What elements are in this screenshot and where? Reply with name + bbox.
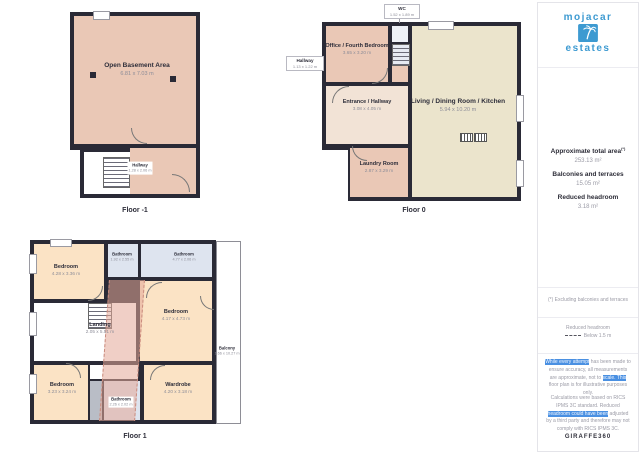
room-label-balcony: Balcony 1.66 x 10.27 m (214, 346, 239, 357)
stairs-floor0 (392, 44, 410, 66)
agency-logo: mojacar estates (538, 12, 638, 54)
room-label-open-basement-area: Open Basement Area 6.81 x 7.03 m (104, 62, 170, 78)
window (50, 239, 72, 247)
stat-label-reduced-headroom: Reduced headroom (538, 194, 638, 201)
window (428, 21, 454, 30)
divider (538, 317, 638, 318)
divider (538, 353, 638, 354)
floor-0-caption: Floor 0 (402, 207, 425, 214)
floor-minus1-caption: Floor -1 (122, 207, 148, 214)
stat-label-balconies: Balconies and terraces (538, 171, 638, 178)
room-label-bathroom-tm: Bathroom 1.92 x 2.55 m (110, 252, 133, 263)
room-wc (392, 26, 408, 42)
window (29, 312, 37, 336)
room-open-basement-area (74, 16, 196, 144)
stat-value-reduced-headroom: 3.18 m² (538, 204, 638, 210)
room-label-bedroom-bl: Bedroom 3.23 x 3.24 m (48, 382, 76, 396)
logo-word-estates: estates (538, 43, 638, 54)
room-label-living: Living / Dining Room / Kitchen 5.94 x 10… (411, 98, 505, 114)
room-label-bedroom-tl: Bedroom 4.28 x 3.36 m (52, 264, 80, 278)
floorplan-page: Open Basement Area 6.81 x 7.03 m Hallway… (0, 0, 640, 453)
dashed-line-sample (565, 335, 581, 336)
logo-word-mojacar: mojacar (538, 12, 638, 23)
area-footnote: (*) Excluding balconies and terraces (538, 297, 638, 305)
pillar (170, 76, 176, 82)
window (516, 95, 524, 122)
window (516, 160, 524, 187)
room-label-office: Office / Fourth Bedroom 3.65 x 3.20 m (325, 43, 388, 57)
floor-0-porch-cut (322, 150, 348, 201)
radiator (474, 133, 487, 142)
legend-item: Below 1.5 m (538, 333, 638, 341)
stat-label-total-area: Approximate total area(*) (538, 146, 638, 155)
divider (538, 287, 638, 288)
window (29, 374, 37, 394)
giraffe360-logo: GIRAFFE360 (538, 434, 638, 440)
stat-value-total-area: 253.13 m² (538, 158, 638, 164)
radiator (460, 133, 473, 142)
info-sidebar: mojacar estates Approximate total area(*… (537, 2, 639, 452)
room-label-wc: WC 1.52 x 1.89 m (384, 4, 420, 19)
floor-1-caption: Floor 1 (123, 433, 146, 440)
room-label-wardrobe: Wardrobe 4.20 x 3.18 m (164, 382, 192, 396)
room-balcony (216, 241, 241, 424)
room-label-hallway-0: Hallway 1.13 x 1.22 m (286, 56, 324, 71)
stat-value-balconies: 15.05 m² (538, 181, 638, 187)
headroom-legend: Reduced headroom Below 1.5 m (538, 325, 638, 341)
room-label-bathroom-tr: Bathroom 4.77 x 2.06 m (172, 252, 195, 263)
legend-title: Reduced headroom (538, 325, 638, 333)
room-label-entrance: Entrance / Hallway 3.08 x 4.05 m (343, 99, 392, 113)
palm-tree-icon (577, 24, 599, 42)
room-label-landing: Landing 2.05 x 5.51 m (86, 322, 114, 336)
room-label-hallway-m1: Hallway 1.28 x 2.06 m (127, 162, 152, 175)
window (29, 254, 37, 274)
room-label-bathroom-bm: Bathroom 2.26 x 2.02 m (108, 397, 133, 408)
room-vestibule (392, 66, 408, 82)
room-label-laundry: Laundry Room 2.87 x 3.29 m (360, 161, 399, 175)
stairs-m1 (103, 157, 130, 188)
room-label-bedroom-mr: Bedroom 4.17 x 4.73 m (162, 309, 190, 323)
window (93, 11, 110, 20)
disclaimer-paragraph-2: Calculations were based on RICS IPMS 3C … (538, 395, 638, 434)
area-stats: Approximate total area(*) 253.13 m² Balc… (538, 139, 638, 210)
divider (538, 67, 638, 68)
disclaimer-paragraph-1: While every attempt has been made to ens… (538, 359, 638, 398)
pillar (90, 72, 96, 78)
